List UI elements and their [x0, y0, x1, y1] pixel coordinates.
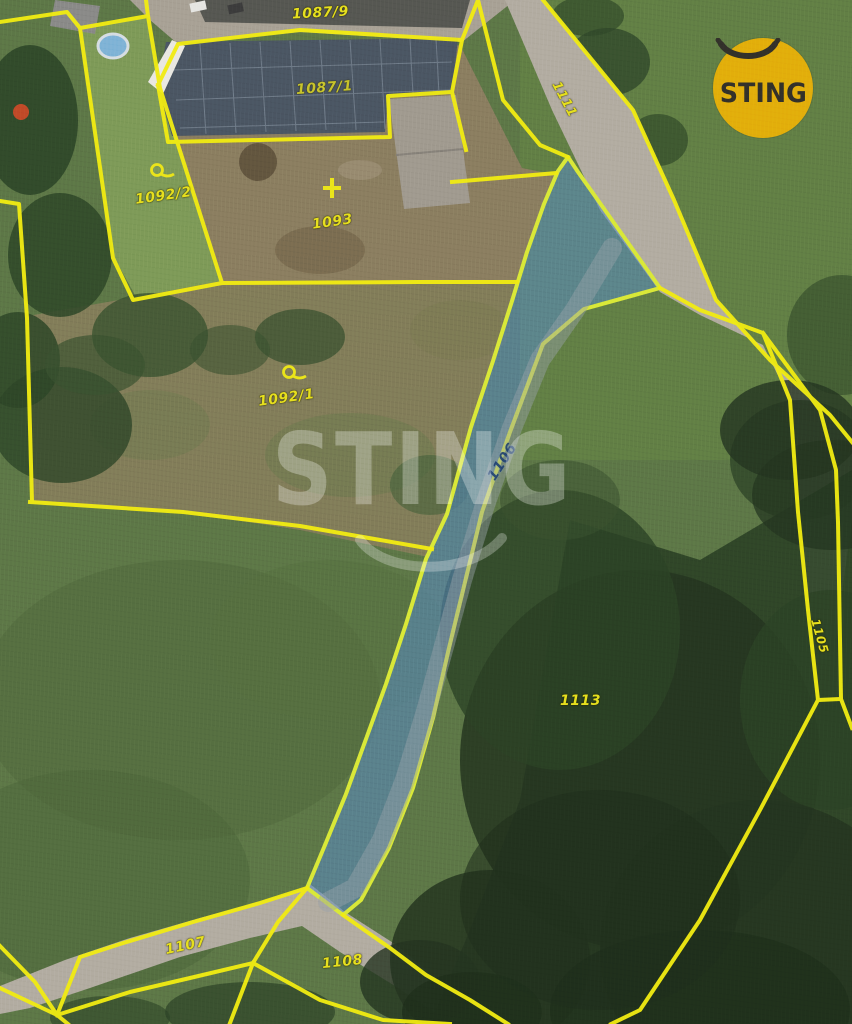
- sting-logo-smile-icon: [713, 38, 783, 68]
- pool: [98, 34, 128, 58]
- sting-logo-badge: STING: [713, 38, 813, 138]
- aerial-cadastral-map[interactable]: 1087/9 1087/1 1092/2 1093 1092/1 1111 11…: [0, 0, 852, 1024]
- sting-logo-text: STING: [719, 80, 806, 107]
- map-graphics: [0, 0, 852, 1024]
- red-object: [13, 104, 29, 120]
